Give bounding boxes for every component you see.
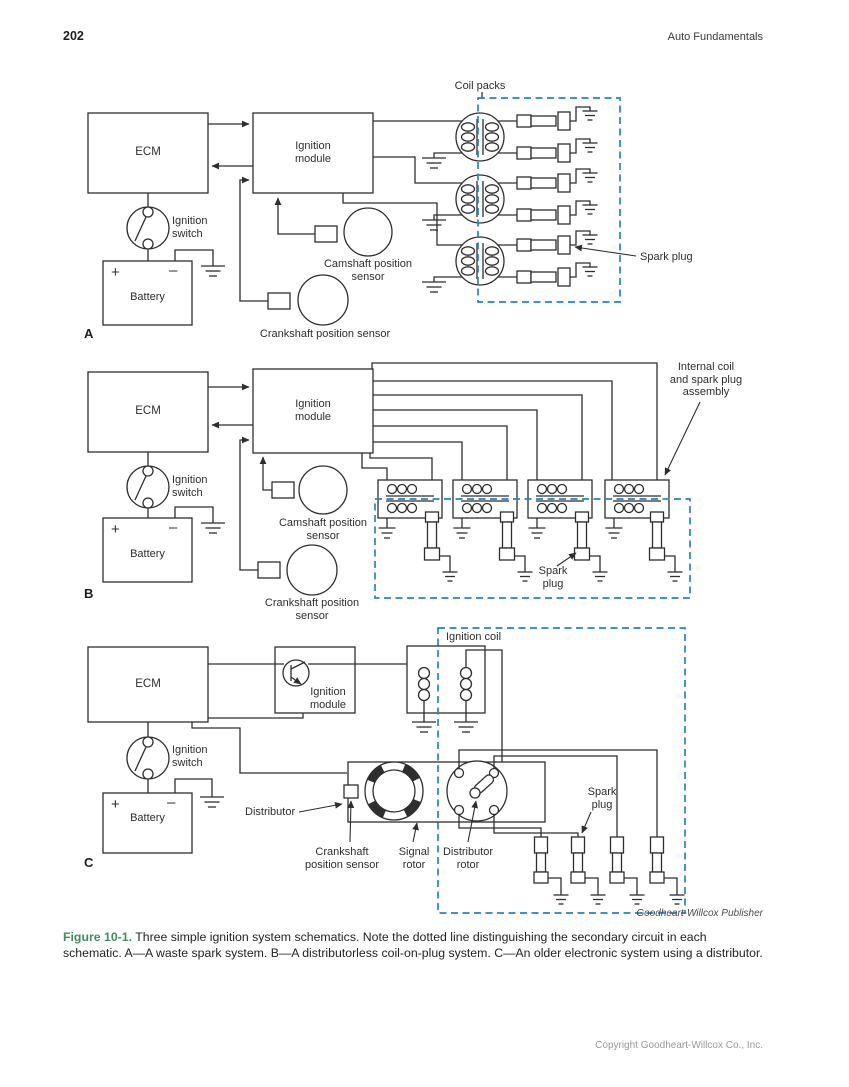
- spark-plug-label-a: Spark plug: [640, 251, 693, 264]
- ignition-coil-label: Ignition coil: [446, 631, 501, 644]
- publisher-credit: Goodheart-Willcox Publisher: [463, 908, 763, 919]
- spark-plug-icons: [498, 107, 598, 286]
- signal-rotor-pointer-arrow: [413, 823, 417, 842]
- ignition-switch-label-c: Ignition switch: [172, 744, 207, 769]
- camshaft-sensor-label-b: Camshaft position sensor: [263, 517, 383, 542]
- spark-plug-label-b: Spark plug: [523, 565, 583, 590]
- figure-caption: Figure 10-1. Three simple ignition syste…: [63, 929, 763, 961]
- crankshaft-pickup-icon: [344, 785, 358, 798]
- ignition-module-label-c: Ignition module: [300, 686, 356, 711]
- distributor-pointer-arrow: [299, 804, 342, 812]
- figure-caption-label: Figure 10-1.: [63, 930, 132, 944]
- coil-packs-label: Coil packs: [430, 80, 530, 93]
- figure-caption-text: Three simple ignition system schematics.…: [63, 930, 763, 960]
- battery-plus-c: +: [111, 796, 120, 813]
- ignition-switch-label-b: Ignition switch: [172, 474, 207, 499]
- battery-minus-a: –: [169, 262, 177, 279]
- distributor-rotor-icon: [447, 761, 507, 821]
- module-to-ecm-wire: [208, 713, 303, 718]
- ignition-switch-icon: [127, 722, 169, 793]
- spark-plug-icons: [534, 837, 685, 904]
- camshaft-sensor-label-a: Camshaft position sensor: [308, 258, 428, 283]
- battery-label-a: Battery: [103, 291, 192, 304]
- battery-minus-c: –: [167, 794, 175, 811]
- ignition-module-label-b: Ignition module: [253, 398, 373, 423]
- diagram-c-letter: C: [84, 855, 93, 870]
- diagram-a-letter: A: [84, 326, 93, 341]
- coil-assembly-wires: [362, 363, 657, 480]
- copyright-notice: Copyright Goodheart-Willcox Co., Inc.: [463, 1040, 763, 1051]
- ecm-to-distributor-wire: [192, 722, 347, 773]
- camshaft-position-sensor-icon: [278, 198, 392, 256]
- crankshaft-sensor-label-c: Crankshaft position sensor: [282, 846, 402, 871]
- camshaft-position-sensor-icon: [263, 457, 347, 514]
- diagram-b-letter: B: [84, 586, 93, 601]
- battery-minus-b: –: [169, 519, 177, 536]
- crankshaft-sensor-label-a: Crankshaft position sensor: [235, 328, 415, 341]
- distributor-box: [344, 758, 545, 823]
- ecm-label-c: ECM: [88, 678, 208, 691]
- crankshaft-sensor-label-b: Crankshaft position sensor: [252, 597, 372, 622]
- signal-rotor-label: Signal rotor: [387, 846, 441, 871]
- ignition-switch-label-a: Ignition switch: [172, 215, 207, 240]
- schematic-canvas: [0, 0, 849, 1087]
- battery-plus-b: +: [111, 521, 120, 538]
- coil-wire-2: [373, 157, 462, 183]
- battery-plus-a: +: [111, 264, 120, 281]
- ecm-label-b: ECM: [88, 405, 208, 418]
- crankshaft-position-sensor-icon: [240, 180, 348, 325]
- running-header: Auto Fundamentals: [463, 31, 763, 43]
- assembly-pointer-arrow: [665, 402, 700, 475]
- ecm-label-a: ECM: [88, 146, 208, 159]
- distributor-rotor-label: Distributor rotor: [437, 846, 499, 871]
- spark-plug-label-c: Spark plug: [578, 786, 626, 811]
- page-number: 202: [63, 29, 84, 43]
- battery-label-c: Battery: [103, 812, 192, 825]
- ignition-switch-icon: [127, 452, 169, 518]
- spark-plug-pointer-arrow: [582, 812, 591, 833]
- ignition-module-label-a: Ignition module: [253, 140, 373, 165]
- ignition-switch-icon: [127, 193, 169, 261]
- battery-label-b: Battery: [103, 548, 192, 561]
- transistor-icon: [283, 660, 309, 686]
- internal-coil-assembly-label: Internal coil and spark plug assembly: [646, 361, 766, 399]
- book-page: 202 Auto Fundamentals Coil packs ECM Ign…: [0, 0, 849, 1087]
- distributor-label: Distributor: [245, 806, 295, 819]
- spark-plug-pointer-arrow: [575, 247, 636, 256]
